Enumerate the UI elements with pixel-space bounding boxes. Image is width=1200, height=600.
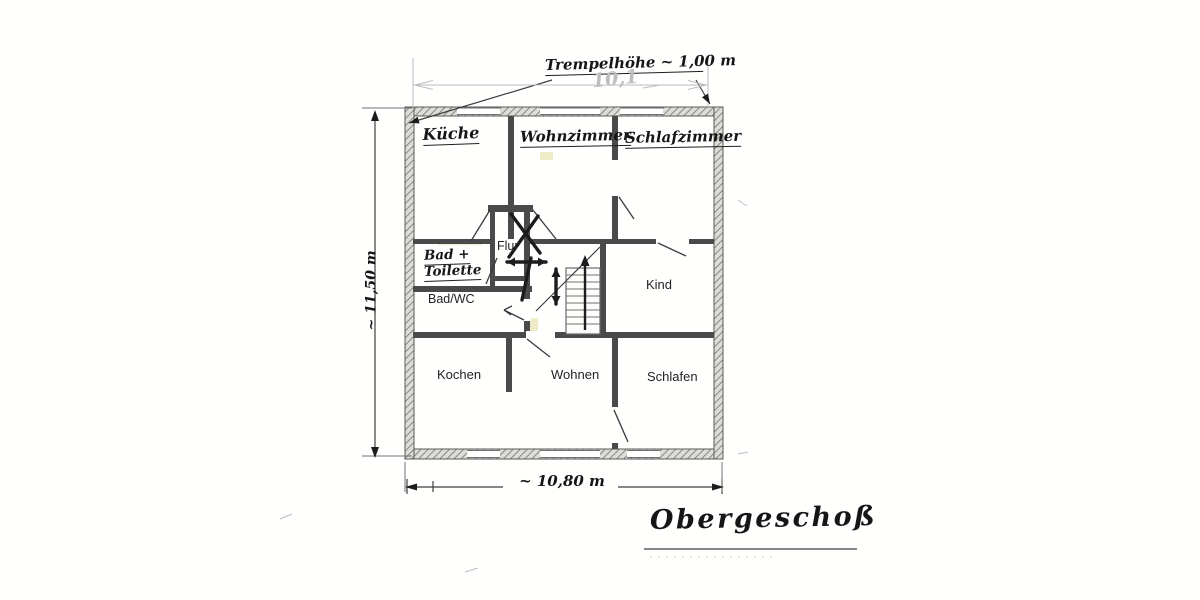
room-label-wohnen: Wohnen [551,368,599,382]
room-label-wohnzimmer: Wohnzimmer [520,128,617,145]
room-label-bad-line2: Toilette [424,263,482,279]
room-label-flur: Flur [497,240,519,253]
dim-width-label: ~ 10,80 m [506,474,618,490]
room-label-schlafzimmer: Schlafzimmer [625,129,721,146]
floorplan-canvas: Trempelhöhe ~ 1,00 m 10,1 Küche Wohnzimm… [0,0,1200,600]
room-label-kueche: Küche [414,125,489,144]
room-label-kochen: Kochen [437,368,481,382]
floor-title: Obergeschoß [650,503,878,535]
room-label-bad-line1: Bad + [424,247,470,263]
dim-height-label: ~ 11,50 m [365,238,380,342]
room-label-schlafen: Schlafen [647,370,698,384]
room-label-kind: Kind [646,278,672,292]
room-label-bad-wc: Bad/WC [428,293,475,306]
